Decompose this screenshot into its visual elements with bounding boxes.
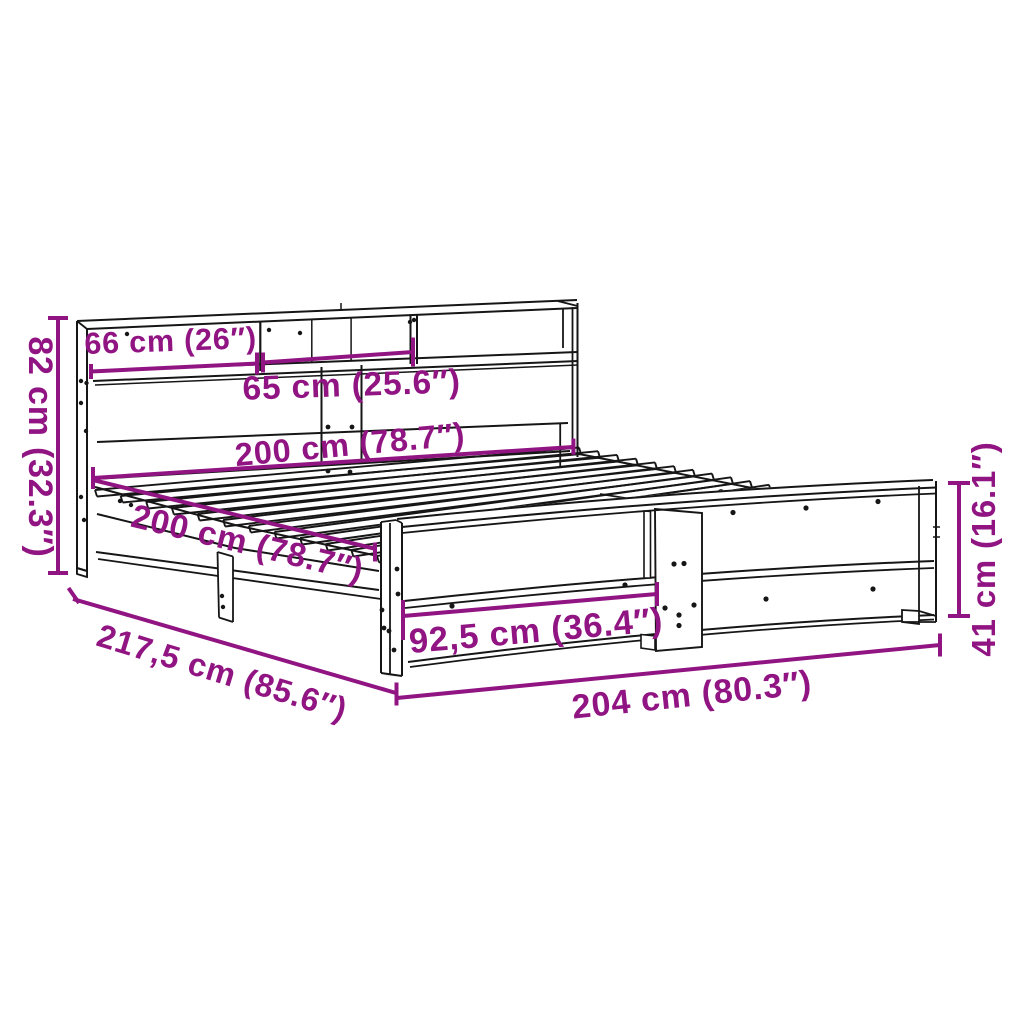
svg-text:41 cm (16.1″): 41 cm (16.1″) bbox=[965, 441, 1002, 656]
svg-text:65 cm (25.6″): 65 cm (25.6″) bbox=[242, 363, 461, 408]
svg-text:66 cm (26″): 66 cm (26″) bbox=[84, 321, 258, 361]
svg-text:82 cm (32.3″): 82 cm (32.3″) bbox=[21, 336, 59, 557]
